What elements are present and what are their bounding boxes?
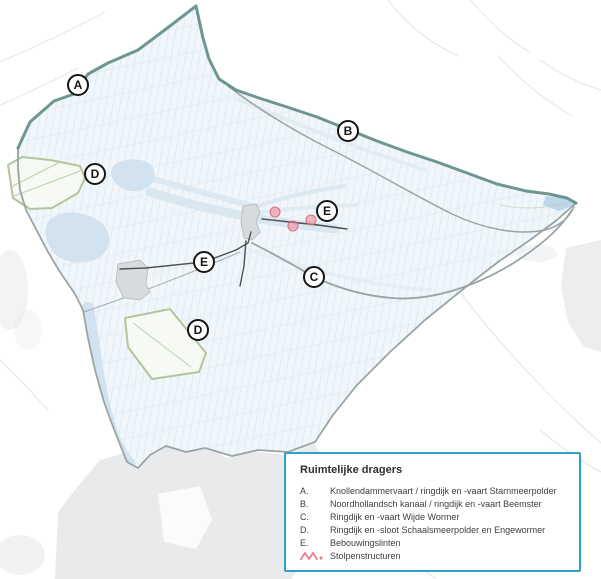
map-marker-a: A <box>67 74 89 96</box>
legend-key: B. <box>300 498 330 511</box>
legend-key: E. <box>300 537 330 550</box>
legend-title: Ruimtelijke dragers <box>300 464 569 476</box>
legend-item: C. Ringdijk en -vaart Wijde Wormer <box>300 511 569 524</box>
map-marker-e2: E <box>193 251 215 273</box>
legend-item: B. Noordhollandsch kanaal / ringdijk en … <box>300 498 569 511</box>
legend-item: A. Knollendammervaart / ringdijk en -vaa… <box>300 485 569 498</box>
legend-label: Noordhollandsch kanaal / ringdijk en -va… <box>330 498 569 511</box>
map-marker-d2: D <box>187 319 209 341</box>
stolpen-icon <box>300 550 330 564</box>
legend-item: E. Bebouwingslinten <box>300 537 569 550</box>
legend-key: A. <box>300 485 330 498</box>
map-marker-d1: D <box>84 163 106 185</box>
legend-label: Knollendammervaart / ringdijk en -vaart … <box>330 485 569 498</box>
legend-key: D. <box>300 524 330 537</box>
legend: Ruimtelijke dragers A. Knollendammervaar… <box>284 452 581 572</box>
legend-item: D. Ringdijk en -sloot Schaalsmeerpolder … <box>300 524 569 537</box>
map-marker-e1: E <box>316 200 338 222</box>
legend-label: Bebouwingslinten <box>330 537 569 550</box>
legend-label: Ringdijk en -sloot Schaalsmeerpolder en … <box>330 524 569 537</box>
legend-label: Stolpenstructuren <box>330 550 569 564</box>
map-marker-b: B <box>337 120 359 142</box>
map-marker-c: C <box>303 266 325 288</box>
legend-key: C. <box>300 511 330 524</box>
map-figure: A B D E E C D Ruimtelijke dragers A. Kno… <box>0 0 601 579</box>
legend-item-stolpen: Stolpenstructuren <box>300 550 569 564</box>
legend-label: Ringdijk en -vaart Wijde Wormer <box>330 511 569 524</box>
